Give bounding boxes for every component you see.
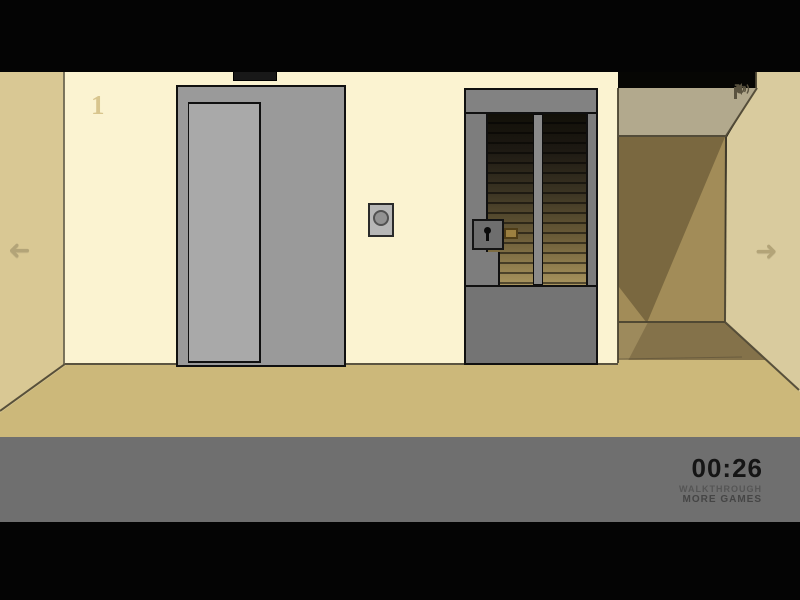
keyhole-icon-stem — [486, 232, 489, 241]
corridor-opening[interactable] — [618, 137, 725, 323]
gate-latch[interactable] — [504, 228, 518, 239]
timer: 00:26 — [692, 453, 764, 484]
gate-bottom-panel — [466, 285, 596, 363]
call-button-plate — [368, 203, 394, 237]
gate-lock[interactable] — [472, 219, 504, 250]
elevator-doors[interactable] — [188, 102, 334, 363]
gate-bars — [488, 114, 588, 285]
more-games-link[interactable]: MORE GAMES — [683, 494, 762, 505]
foreground-panel: 00:26 WALKTHROUGH MORE GAMES — [0, 437, 800, 522]
sound-icon[interactable] — [734, 83, 752, 95]
letterbox-top — [0, 0, 800, 72]
gate-bar — [533, 114, 543, 285]
elevator-indicator-panel — [233, 72, 277, 81]
gate-frame-right — [586, 114, 596, 285]
floor-number-label: 1 — [91, 90, 105, 121]
elevator-call-button[interactable] — [373, 210, 389, 226]
gate-lock-column — [466, 252, 500, 285]
gate-header-rail — [466, 90, 596, 114]
elevator-door-right[interactable] — [188, 102, 261, 363]
hud-icon-bar: ↻ — [734, 82, 796, 96]
barred-gate[interactable] — [464, 88, 598, 365]
corridor-shadow — [618, 137, 725, 323]
letterbox-bottom — [0, 522, 800, 600]
game-stage: 1 ➜ ➜ ↻ 00:26 WALKTHROUGH MORE GAMES — [0, 0, 800, 600]
nav-arrow-left-icon[interactable]: ➜ — [8, 237, 31, 264]
walkthrough-link[interactable]: WALKTHROUGH — [679, 484, 762, 494]
nav-arrow-right-icon[interactable]: ➜ — [755, 238, 778, 265]
